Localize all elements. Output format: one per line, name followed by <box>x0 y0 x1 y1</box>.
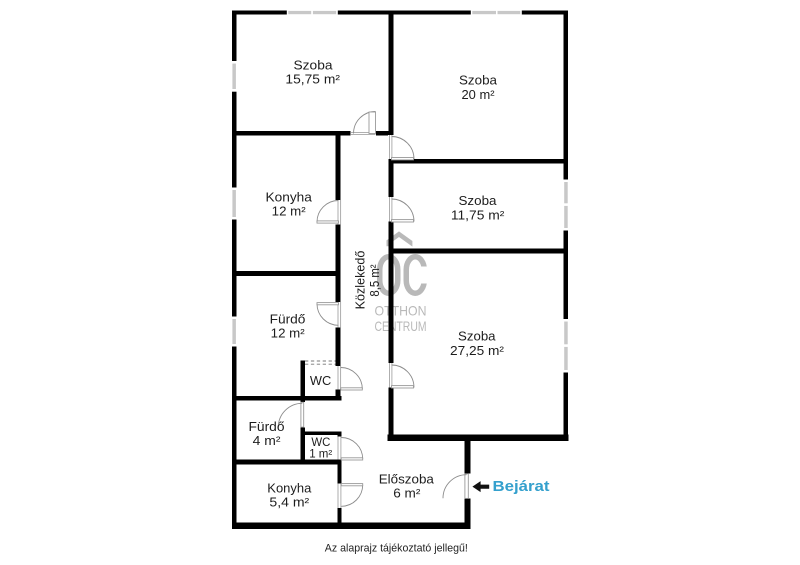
svg-text:Szoba: Szoba <box>459 193 498 208</box>
svg-text:Fürdő: Fürdő <box>249 419 285 434</box>
svg-text:Közlekedő: Közlekedő <box>353 251 368 310</box>
svg-text:6 m²: 6 m² <box>393 486 421 501</box>
svg-text:11,75 m²: 11,75 m² <box>451 208 505 223</box>
svg-text:Szoba: Szoba <box>294 58 334 73</box>
svg-text:Az alaprajz tájékoztató jelleg: Az alaprajz tájékoztató jellegű! <box>325 543 468 555</box>
svg-text:CENTRUM: CENTRUM <box>375 318 427 334</box>
svg-text:Szoba: Szoba <box>459 73 498 88</box>
svg-text:Szoba: Szoba <box>458 329 496 344</box>
svg-text:OTTHON: OTTHON <box>375 303 427 319</box>
svg-text:1 m²: 1 m² <box>309 449 332 461</box>
svg-text:5,4 m²: 5,4 m² <box>269 495 310 510</box>
svg-text:15,75 m²: 15,75 m² <box>285 72 340 87</box>
svg-text:WC: WC <box>310 373 331 388</box>
svg-text:12 m²: 12 m² <box>272 204 307 219</box>
svg-text:Bejárat: Bejárat <box>493 478 550 495</box>
svg-text:Előszoba: Előszoba <box>379 472 435 487</box>
svg-text:8,5 m²: 8,5 m² <box>367 264 382 297</box>
svg-text:4 m²: 4 m² <box>253 433 282 448</box>
svg-text:Konyha: Konyha <box>267 481 312 496</box>
svg-text:12 m²: 12 m² <box>271 326 306 341</box>
svg-text:Fürdő: Fürdő <box>270 312 306 327</box>
svg-text:27,25 m²: 27,25 m² <box>450 343 505 358</box>
svg-text:Konyha: Konyha <box>266 190 313 205</box>
svg-text:20 m²: 20 m² <box>462 87 496 102</box>
svg-text:WC: WC <box>311 437 330 449</box>
